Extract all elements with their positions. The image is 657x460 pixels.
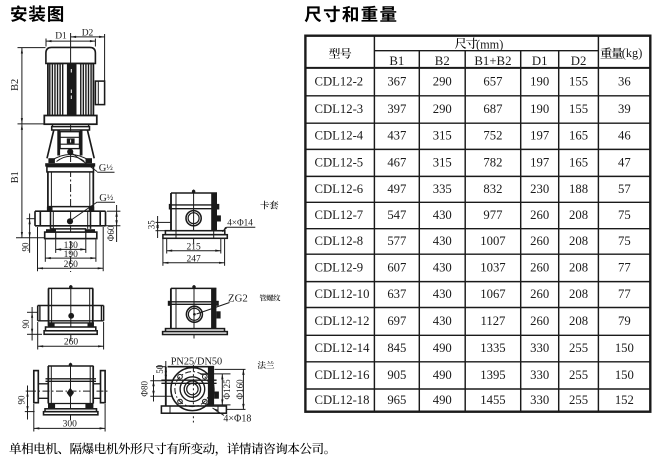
svg-text:90: 90 [20,242,30,252]
svg-text:1455: 1455 [480,393,505,407]
svg-text:47: 47 [618,155,631,169]
svg-text:D2: D2 [82,29,94,39]
svg-text:Φ80: Φ80 [140,381,150,397]
svg-text:150: 150 [615,368,634,382]
svg-text:330: 330 [530,341,549,355]
svg-text:255: 255 [569,368,588,382]
svg-text:Φ125: Φ125 [222,379,232,400]
svg-text:CDL12-5: CDL12-5 [315,155,364,169]
svg-text:(mm): (mm) [476,37,503,51]
svg-text:79: 79 [618,314,631,328]
svg-text:290: 290 [433,74,452,88]
svg-text:39: 39 [618,102,631,116]
svg-text:ZG2: ZG2 [228,292,248,304]
svg-text:490: 490 [433,368,452,382]
svg-text:260: 260 [530,260,549,274]
svg-text:165: 165 [569,129,588,143]
svg-text:637: 637 [387,287,406,301]
svg-text:430: 430 [433,260,452,274]
svg-text:B2: B2 [435,54,450,68]
svg-text:255: 255 [569,341,588,355]
svg-text:208: 208 [569,314,588,328]
svg-text:CDL12-2: CDL12-2 [315,74,364,88]
svg-text:260: 260 [64,260,79,270]
svg-text:208: 208 [569,208,588,222]
svg-text:77: 77 [618,260,631,274]
svg-text:CDL12-10: CDL12-10 [315,287,370,301]
svg-text:687: 687 [483,102,502,116]
svg-text:(kg): (kg) [622,46,643,60]
svg-text:1037: 1037 [480,260,505,274]
svg-text:46: 46 [618,129,631,143]
svg-text:300: 300 [63,419,78,429]
svg-text:CDL12-12: CDL12-12 [315,314,370,328]
svg-text:197: 197 [530,155,549,169]
svg-text:782: 782 [483,155,502,169]
svg-text:260: 260 [530,208,549,222]
svg-text:497: 497 [387,182,406,196]
svg-text:35: 35 [147,220,157,230]
svg-text:152: 152 [615,393,634,407]
svg-text:437: 437 [387,129,406,143]
svg-text:B1: B1 [10,171,21,183]
svg-text:77: 77 [618,287,631,301]
svg-text:215: 215 [186,242,201,252]
svg-text:467: 467 [387,155,406,169]
svg-text:CDL12-3: CDL12-3 [315,102,364,116]
svg-text:367: 367 [387,74,406,88]
svg-text:430: 430 [433,208,452,222]
svg-text:155: 155 [569,74,588,88]
svg-text:CDL12-18: CDL12-18 [315,393,370,407]
svg-text:75: 75 [618,234,631,248]
svg-text:1335: 1335 [480,341,505,355]
svg-text:165: 165 [569,155,588,169]
svg-text:CDL12-8: CDL12-8 [315,234,364,248]
svg-text:1067: 1067 [480,287,505,301]
svg-text:36: 36 [618,74,631,88]
svg-text:965: 965 [387,393,406,407]
svg-text:4×Φ18: 4×Φ18 [223,413,251,424]
svg-text:430: 430 [433,287,452,301]
svg-text:657: 657 [483,74,502,88]
svg-text:90: 90 [17,395,27,405]
svg-text:430: 430 [433,314,452,328]
svg-text:547: 547 [387,208,406,222]
svg-text:260: 260 [64,338,79,348]
svg-text:1127: 1127 [480,314,505,328]
svg-text:577: 577 [387,234,406,248]
svg-text:D2: D2 [571,54,587,68]
svg-text:90: 90 [21,319,31,329]
svg-text:CDL12-14: CDL12-14 [315,341,371,355]
svg-text:315: 315 [433,155,452,169]
svg-text:490: 490 [433,341,452,355]
svg-text:397: 397 [387,102,406,116]
svg-text:208: 208 [569,260,588,274]
svg-text:150: 150 [615,341,634,355]
svg-text:208: 208 [569,234,588,248]
svg-text:230: 230 [530,182,549,196]
svg-text:335: 335 [433,182,452,196]
svg-text:Φ160: Φ160 [235,379,245,400]
svg-text:CDL12-6: CDL12-6 [315,182,364,196]
svg-text:247: 247 [186,255,201,265]
svg-text:50: 50 [155,364,165,374]
svg-text:CDL12-9: CDL12-9 [315,260,364,274]
svg-text:1007: 1007 [480,234,505,248]
svg-text:190: 190 [530,74,549,88]
svg-text:208: 208 [569,287,588,301]
svg-text:B2: B2 [10,79,21,91]
svg-text:977: 977 [483,208,502,222]
svg-text:260: 260 [530,314,549,328]
svg-text:260: 260 [530,234,549,248]
svg-text:490: 490 [433,393,452,407]
svg-text:197: 197 [530,129,549,143]
svg-text:752: 752 [483,129,502,143]
svg-text:845: 845 [387,341,406,355]
svg-text:260: 260 [530,287,549,301]
svg-text:255: 255 [569,393,588,407]
svg-text:D1: D1 [532,54,548,68]
svg-text:1395: 1395 [480,368,505,382]
svg-text:905: 905 [387,368,406,382]
svg-text:190: 190 [64,250,79,260]
svg-text:57: 57 [618,182,631,196]
svg-text:832: 832 [483,182,502,196]
svg-text:Φ60: Φ60 [106,225,116,241]
svg-text:D1: D1 [55,32,67,42]
svg-text:330: 330 [530,393,549,407]
svg-text:75: 75 [618,208,631,222]
svg-text:697: 697 [387,314,406,328]
svg-text:CDL12-7: CDL12-7 [315,208,364,222]
svg-text:290: 290 [433,102,452,116]
svg-text:B1: B1 [389,54,404,68]
svg-text:155: 155 [569,102,588,116]
svg-text:607: 607 [387,260,406,274]
svg-text:430: 430 [433,234,452,248]
svg-text:330: 330 [530,368,549,382]
svg-text:CDL12-4: CDL12-4 [315,129,364,143]
svg-text:190: 190 [530,102,549,116]
svg-text:B1+B2: B1+B2 [474,54,511,68]
svg-text:188: 188 [569,182,588,196]
svg-text:315: 315 [433,129,452,143]
svg-text:CDL12-16: CDL12-16 [315,368,370,382]
svg-text:4×Φ14: 4×Φ14 [227,218,253,228]
